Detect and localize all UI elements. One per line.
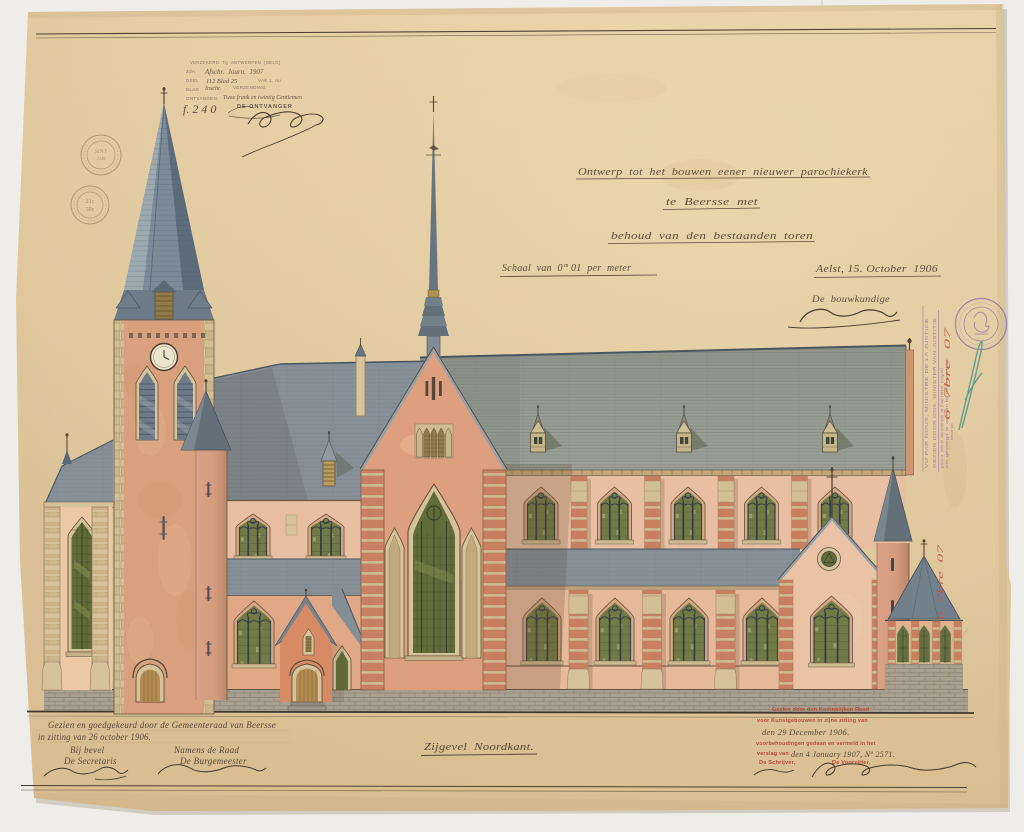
svg-text:Namens de Raad: Namens de Raad — [173, 745, 239, 755]
svg-text:den 4 January 1907, Nº 2571.: den 4 January 1907, Nº 2571. — [791, 750, 895, 759]
svg-text:voor Kunstgebouwen in zijne zi: voor Kunstgebouwen in zijne zitting van — [757, 718, 868, 724]
svg-text:De Schrijver,: De Schrijver, — [759, 760, 796, 766]
svg-text:Gezien en goedgekeurd door de: Gezien en goedgekeurd door de Gemeentera… — [48, 720, 276, 730]
svg-text:den 29 December 1906.: den 29 December 1906. — [762, 727, 850, 737]
svg-text:Bij bevel: Bij bevel — [70, 745, 105, 755]
svg-text:voorbehoudingen gedaan en verm: voorbehoudingen gedaan en vermeld in het — [756, 741, 876, 747]
svg-text:De Secretaris: De Secretaris — [63, 756, 117, 766]
svg-text:De Burgemeester: De Burgemeester — [179, 756, 247, 766]
svg-text:Zijgevel Noordkant.: Zijgevel Noordkant. — [424, 742, 534, 753]
svg-text:Gezien door den Koninklijken R: Gezien door den Koninklijken Raad — [772, 707, 869, 713]
svg-text:in zitting van 26 october 1906: in zitting van 26 october 1906. — [38, 732, 151, 742]
svg-text:verslag van: verslag van — [757, 751, 789, 757]
